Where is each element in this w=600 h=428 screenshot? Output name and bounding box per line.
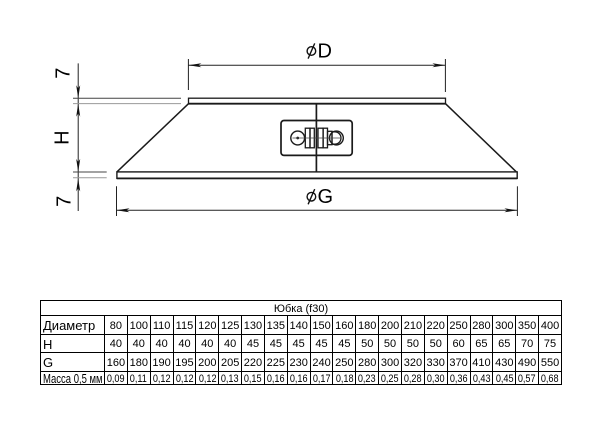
svg-text:H: H (52, 130, 74, 144)
svg-text:D: D (318, 40, 332, 62)
svg-text:G: G (318, 186, 334, 208)
svg-text:7: 7 (53, 68, 75, 79)
svg-text:7: 7 (54, 196, 76, 207)
